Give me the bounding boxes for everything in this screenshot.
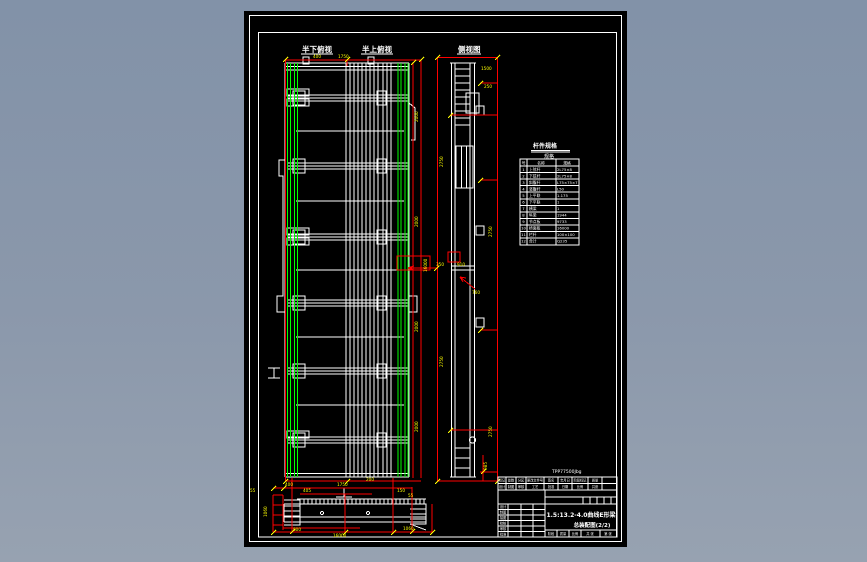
dim-text: 2000 <box>414 321 419 332</box>
cell-no: 10 <box>521 226 526 231</box>
cell-spec: L75×75×7 <box>557 180 578 185</box>
dim-text: 2750 <box>488 426 493 437</box>
cad-canvas[interactable]: 半下俯视 半上俯视 侧视图 400 1750 2000 2000 2000 20… <box>0 0 867 562</box>
dim-text: 2000 <box>414 216 419 227</box>
spec-table-title: 杆件规格 <box>533 142 558 150</box>
rev-cell: 共张 <box>592 484 599 489</box>
dim-text: 2000 <box>414 111 419 122</box>
dim-text: 400 <box>285 482 293 487</box>
dim-text: 1750 <box>338 54 349 59</box>
cell-spec: L50 <box>557 187 565 192</box>
col-header: 名称 <box>537 161 545 166</box>
left-col-cell: 校核 <box>500 521 507 526</box>
dim-text: 2750 <box>439 356 444 367</box>
cell-name: 合计 <box>529 239 537 244</box>
left-col-cell: 描图 <box>500 515 506 520</box>
dim-text: 350 <box>436 262 444 267</box>
bottom-cell: 比例 <box>572 531 578 536</box>
dim-text: 910 <box>457 262 465 267</box>
cell-name: 桥面板 <box>529 226 541 231</box>
cell-name: 上平联 <box>529 193 541 198</box>
dim-text: 1060 <box>403 526 414 531</box>
left-col-cell: 制图 <box>500 510 506 515</box>
dim-text: 2750 <box>488 226 493 237</box>
cell-spec: 1944 <box>557 213 567 218</box>
dim-text: 150 <box>397 488 405 493</box>
dim-text: 800 <box>293 527 301 532</box>
dim-text: 405 <box>303 488 311 493</box>
cell-spec: 2L75×8 <box>557 174 573 179</box>
cell-name: 下弦杆 <box>529 174 541 179</box>
bottom-cell: 质量 <box>560 531 567 536</box>
rev-cell: 更改文件号 <box>527 478 543 483</box>
bottom-cell: 第 张 <box>604 531 612 536</box>
dim-text: 760 <box>472 290 480 295</box>
rev-cell: 签名 <box>548 478 554 483</box>
rev-cell: 年月日 <box>560 478 570 483</box>
cell-name: 上弦杆 <box>529 167 541 172</box>
left-col-cell: 设计 <box>500 504 507 509</box>
dim-text: 16000 <box>333 533 347 538</box>
rev-cell: 质量 <box>592 478 599 483</box>
doc-number: TPP77500Jbg <box>551 469 582 475</box>
cell-name: 纵梁 <box>529 213 537 218</box>
cell-no: 12 <box>521 239 526 244</box>
dim-text: 2000 <box>414 421 419 432</box>
dim-text: 1750 <box>337 482 348 487</box>
left-col-cell: 批准 <box>500 532 507 537</box>
cell-no: 11 <box>521 232 526 237</box>
dim-text: 250 <box>484 84 492 89</box>
rev-cell: 比例 <box>577 484 583 489</box>
view-label-plan-top: 半上俯视 <box>362 44 392 54</box>
rev-cell: 设计 <box>499 484 506 489</box>
cell-name: 节点板 <box>529 219 541 224</box>
cell-name: 竖腹杆 <box>529 187 541 192</box>
drawing-title-line2: 总装配图(2/2) <box>574 521 611 529</box>
cell-name: 栏杆 <box>529 232 537 237</box>
left-col-cell: 审核 <box>500 526 507 531</box>
cell-name: 横梁 <box>529 206 537 211</box>
dim-text: 55 <box>408 493 414 498</box>
rev-cell: 分区 <box>518 478 525 483</box>
rev-cell: 批准 <box>548 484 555 489</box>
cell-spec: 100×100 <box>557 232 575 237</box>
cell-name: 斜腹杆 <box>529 180 541 185</box>
drawing-title-line1: 1.5:13.2-4.0曲线E形梁 <box>546 511 615 519</box>
bottom-cell: 共 张 <box>586 531 594 536</box>
dim-text: 985 <box>483 462 488 470</box>
cell-spec: 9733 <box>557 219 567 224</box>
rev-cell: 工艺 <box>532 484 538 489</box>
view-label-plan-bottom: 半下俯视 <box>302 44 332 54</box>
bottom-cell: 阶段 <box>548 531 555 536</box>
cell-spec: 2L75×8 <box>557 167 573 172</box>
rev-cell: 阶段标记 <box>574 478 588 483</box>
col-header: 号 <box>522 161 526 166</box>
desktop-background: 半下俯视 半上俯视 侧视图 400 1750 2000 2000 2000 20… <box>0 0 867 562</box>
dim-text: 16000 <box>423 258 428 272</box>
dim-text: 55 <box>250 488 256 493</box>
rev-cell: 制图 <box>508 484 514 489</box>
view-label-side: 侧视图 <box>458 44 481 54</box>
rev-cell: 日期 <box>562 484 568 489</box>
dim-text: 1060 <box>263 506 268 517</box>
dim-text: 1500 <box>481 66 492 71</box>
cell-spec: 1.175 <box>557 193 568 198</box>
dim-text: 200 <box>366 477 374 482</box>
cell-spec: Q235 <box>557 239 568 244</box>
cell-spec: 16000 <box>557 226 570 231</box>
dim-text: 400 <box>313 54 321 59</box>
rev-cell: 审核 <box>518 484 525 489</box>
rev-cell: 标记 <box>499 478 506 483</box>
cell-name: 下平联 <box>529 200 541 205</box>
col-header: 规格 <box>563 161 571 166</box>
dim-text: 2750 <box>439 156 444 167</box>
rev-cell: 处数 <box>508 478 515 483</box>
